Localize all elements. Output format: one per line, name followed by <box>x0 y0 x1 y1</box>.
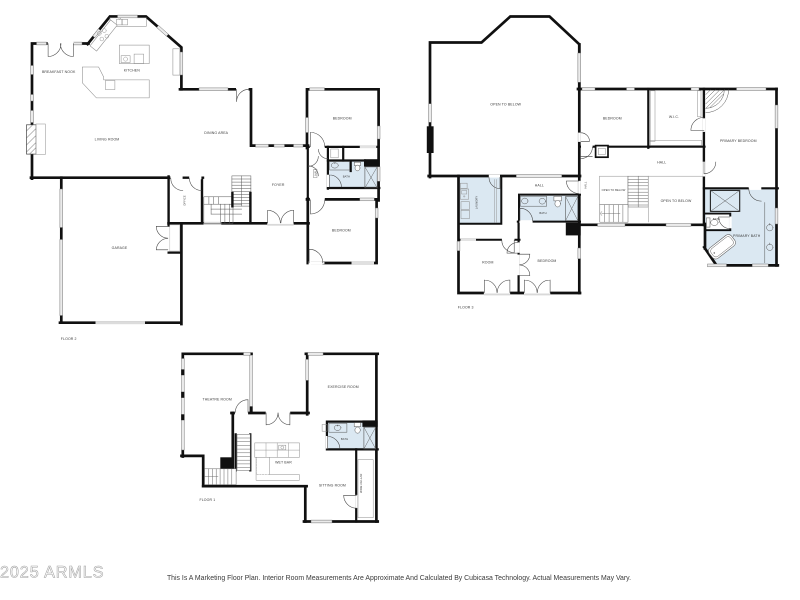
svg-text:LIVING ROOM: LIVING ROOM <box>95 138 120 142</box>
svg-text:BEDROOM: BEDROOM <box>538 259 557 263</box>
svg-text:FLOOR 1: FLOOR 1 <box>199 498 215 502</box>
svg-text:BEDROOM: BEDROOM <box>332 228 351 232</box>
svg-text:W.I.C.: W.I.C. <box>669 115 679 119</box>
svg-text:BATH: BATH <box>343 174 350 178</box>
svg-text:THEATRE ROOM: THEATRE ROOM <box>203 397 232 401</box>
svg-text:HALL: HALL <box>657 161 666 165</box>
svg-text:FLOOR 3: FLOOR 3 <box>458 306 474 310</box>
svg-text:KITCHEN: KITCHEN <box>124 69 141 73</box>
svg-text:2025 ARMLS: 2025 ARMLS <box>0 564 104 582</box>
svg-text:BEDROOM: BEDROOM <box>333 117 352 121</box>
svg-text:HALL: HALL <box>535 183 544 187</box>
svg-text:FOYER: FOYER <box>272 183 285 187</box>
svg-text:OPEN TO BELOW: OPEN TO BELOW <box>490 102 521 106</box>
svg-text:OPEN TO BELOW: OPEN TO BELOW <box>602 188 626 192</box>
svg-text:BATH: BATH <box>341 437 348 441</box>
svg-text:HALL: HALL <box>313 168 317 176</box>
svg-text:DINING AREA: DINING AREA <box>204 131 228 135</box>
svg-text:OFFICE: OFFICE <box>182 195 186 206</box>
svg-text:EXERCISE ROOM: EXERCISE ROOM <box>328 385 359 389</box>
svg-text:BATH: BATH <box>539 211 546 215</box>
svg-text:BREAKFAST NOOK: BREAKFAST NOOK <box>42 70 76 74</box>
svg-text:SITTING ROOM: SITTING ROOM <box>319 484 346 488</box>
svg-text:GARAGE: GARAGE <box>112 246 128 250</box>
svg-text:PRIMARY BATH: PRIMARY BATH <box>733 234 761 238</box>
svg-text:OPEN TO BELOW: OPEN TO BELOW <box>661 199 692 203</box>
svg-text:ROOM: ROOM <box>482 260 493 264</box>
svg-text:WINE CELLAR: WINE CELLAR <box>359 474 363 493</box>
svg-text:WET BAR: WET BAR <box>275 461 292 465</box>
svg-text:PRIMARY BEDROOM: PRIMARY BEDROOM <box>720 139 757 143</box>
svg-text:HALL: HALL <box>584 181 588 189</box>
svg-text:LAUNDRY: LAUNDRY <box>475 196 479 210</box>
svg-text:BATH: BATH <box>713 217 720 221</box>
svg-text:FLOOR 2: FLOOR 2 <box>61 337 77 341</box>
svg-text:This Is A Marketing Floor Plan: This Is A Marketing Floor Plan. Interior… <box>167 575 631 582</box>
svg-text:BEDROOM: BEDROOM <box>603 117 622 121</box>
